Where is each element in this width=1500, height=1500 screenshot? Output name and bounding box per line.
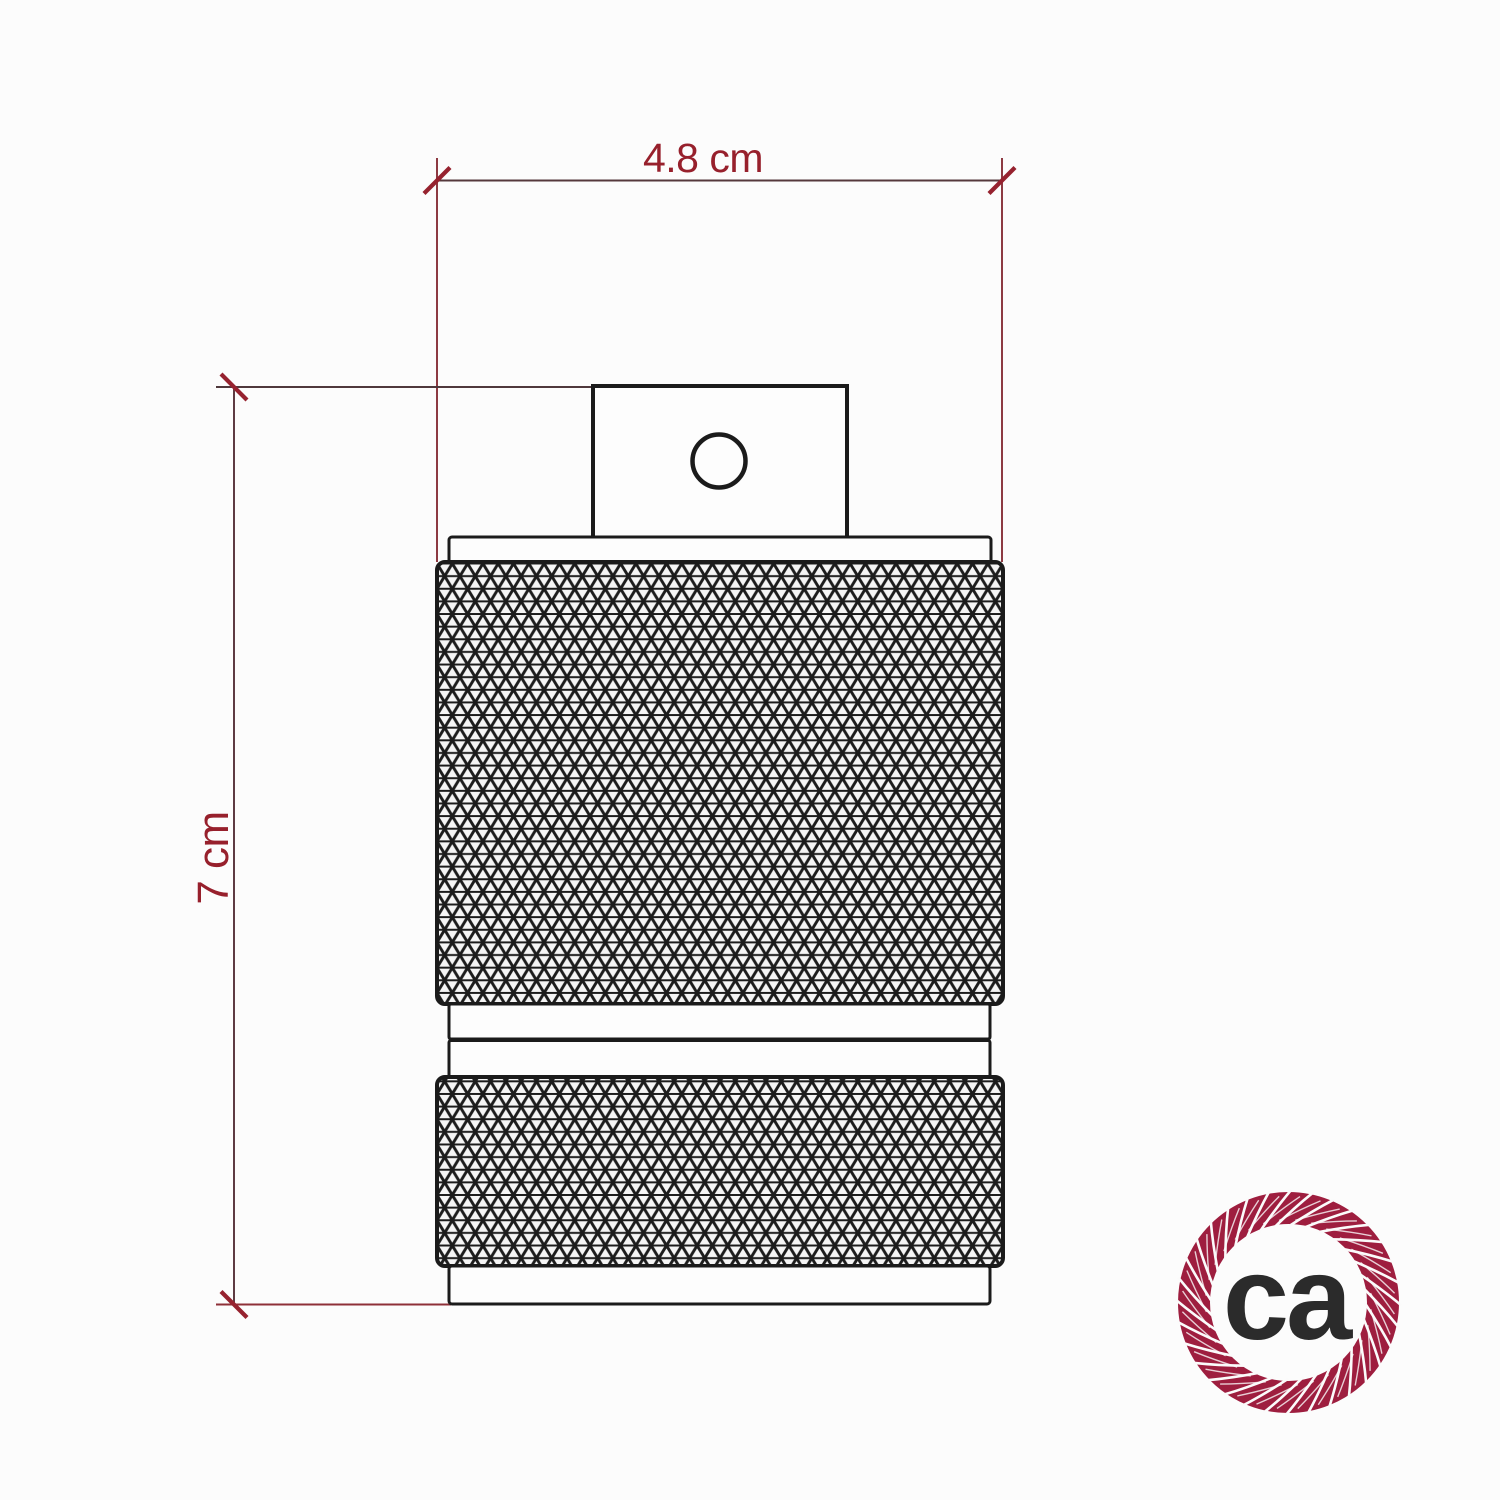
svg-text:7 cm: 7 cm [189,811,238,904]
svg-text:4.8 cm: 4.8 cm [643,135,763,181]
svg-text:ca: ca [1223,1232,1353,1365]
